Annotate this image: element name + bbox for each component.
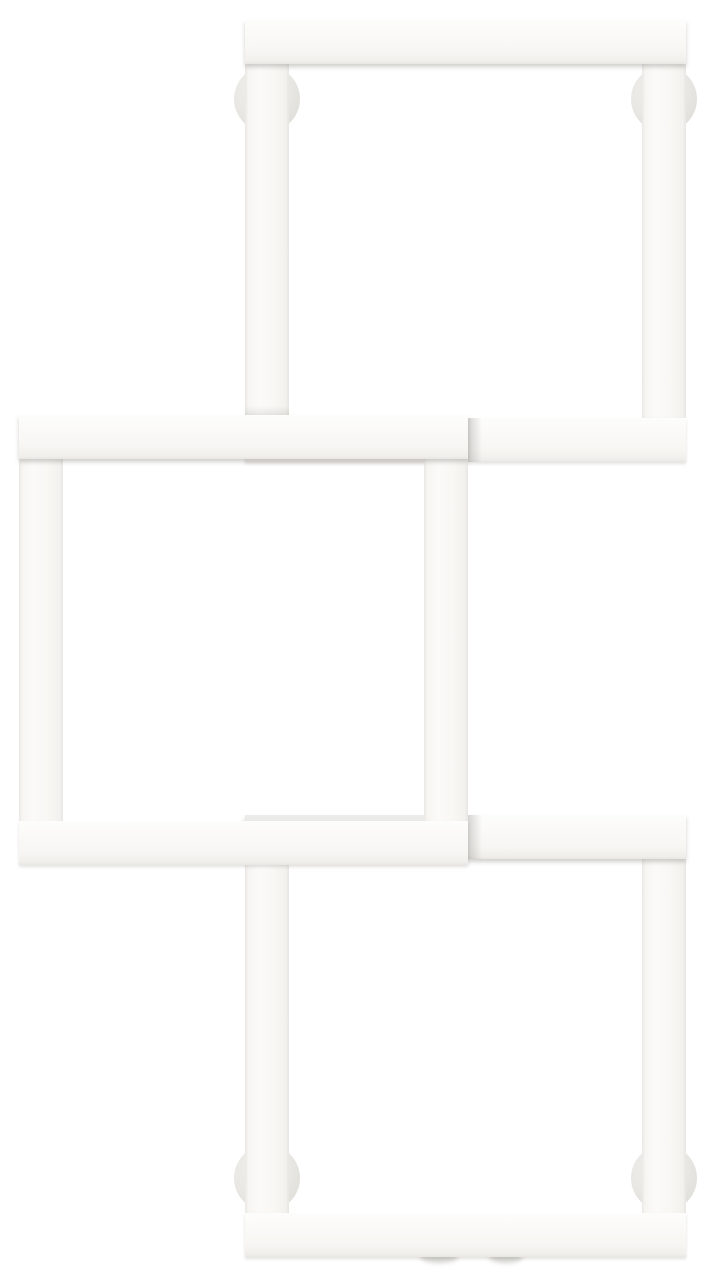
- bottom-square-left-tube: [245, 815, 289, 1257]
- occlusion-above-middle-top-bar: [245, 406, 289, 415]
- crossing-shadow-upper: [468, 418, 482, 462]
- middle-square-left-tube: [19, 415, 63, 865]
- middle-square-bottom-tube: [19, 821, 468, 865]
- top-square-left-tube: [245, 20, 289, 462]
- bottom-square-right-tube: [642, 815, 686, 1257]
- middle-square-right-tube: [424, 415, 468, 865]
- product-photo-stage: [0, 0, 713, 1280]
- crossing-shadow-lower: [468, 815, 482, 859]
- top-square-right-tube: [642, 20, 686, 462]
- top-square-top-tube: [245, 20, 686, 64]
- middle-square-top-tube: [19, 415, 468, 459]
- bottom-square-bottom-tube: [245, 1213, 686, 1257]
